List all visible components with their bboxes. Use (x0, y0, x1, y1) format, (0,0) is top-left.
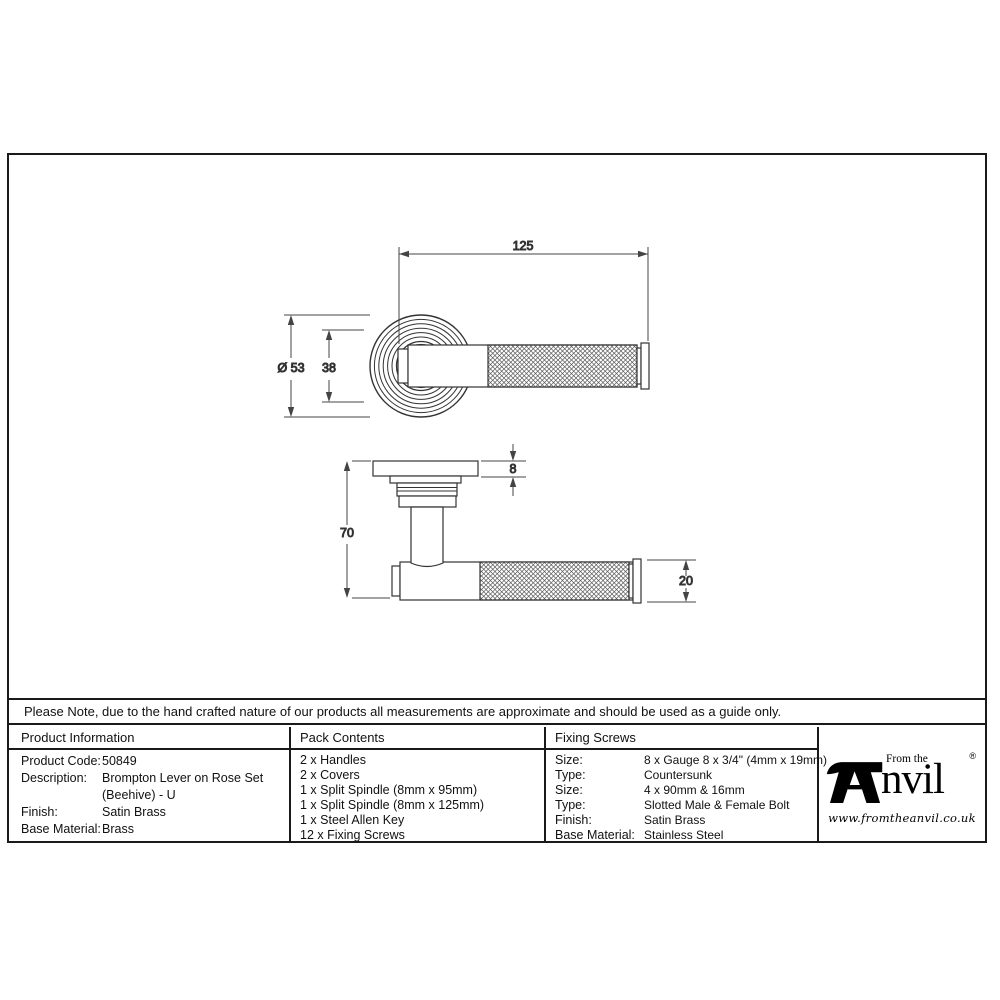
spec-label: Description: (21, 770, 102, 804)
spec-value: Satin Brass (102, 804, 283, 821)
spec-value: Brompton Lever on Rose Set (Beehive) - U (102, 770, 283, 804)
pack-item: 1 x Steel Allen Key (300, 813, 544, 828)
spec-label: Size: (555, 783, 644, 798)
spec-label: Product Code: (21, 753, 102, 770)
note-row: Please Note, due to the hand crafted nat… (9, 698, 985, 725)
product-information-header: Product Information (9, 727, 289, 750)
spec-sheet-page: Please Note, due to the hand crafted nat… (0, 0, 1000, 1000)
spec-label: Base Material: (555, 828, 644, 843)
fixing-screws-body: Size: 8 x Gauge 8 x 3/4" (4mm x 19mm) Ty… (546, 750, 817, 844)
spec-value: Countersunk (644, 768, 827, 783)
spec-value: Satin Brass (644, 813, 827, 828)
spec-value: 4 x 90mm & 16mm (644, 783, 827, 798)
pack-contents-body: 2 x Handles 2 x Covers 1 x Split Spindle… (291, 750, 544, 844)
registered-trademark-icon: ® (969, 751, 976, 761)
fixing-screws-column: Fixing Screws Size: 8 x Gauge 8 x 3/4" (… (546, 727, 819, 841)
pack-item: 12 x Fixing Screws (300, 828, 544, 843)
logo-wordmark-text: nvil (881, 756, 944, 803)
sheet-border-box: Please Note, due to the hand crafted nat… (7, 153, 987, 843)
spec-value: 8 x Gauge 8 x 3/4" (4mm x 19mm) (644, 753, 827, 768)
spec-label: Type: (555, 798, 644, 813)
spec-table: Product Information Product Code: 50849 … (9, 727, 985, 841)
product-information-column: Product Information Product Code: 50849 … (9, 727, 291, 841)
pack-contents-column: Pack Contents 2 x Handles 2 x Covers 1 x… (291, 727, 546, 841)
pack-contents-header: Pack Contents (291, 727, 544, 750)
spec-label: Finish: (555, 813, 644, 828)
anvil-icon (826, 757, 884, 805)
logo-wordmark: From the nvil ® (826, 755, 978, 809)
spec-label: Finish: (21, 804, 102, 821)
from-the-anvil-logo: From the nvil ® www.fromtheanvil.co.uk (826, 743, 978, 825)
spec-value: Stainless Steel (644, 828, 827, 843)
spec-value: Brass (102, 821, 283, 838)
pack-item: 2 x Handles (300, 753, 544, 768)
logo-website: www.fromtheanvil.co.uk (826, 811, 978, 825)
pack-item: 1 x Split Spindle (8mm x 95mm) (300, 783, 544, 798)
product-information-body: Product Code: 50849 Description: Brompto… (9, 750, 289, 838)
brand-column: From the nvil ® www.fromtheanvil.co.uk (819, 727, 985, 841)
spec-label: Type: (555, 768, 644, 783)
spec-label: Base Material: (21, 821, 102, 838)
spec-label: Size: (555, 753, 644, 768)
spec-value: 50849 (102, 753, 283, 770)
note-text: Please Note, due to the hand crafted nat… (9, 704, 781, 719)
pack-item: 2 x Covers (300, 768, 544, 783)
pack-item: 1 x Split Spindle (8mm x 125mm) (300, 798, 544, 813)
spec-value: Slotted Male & Female Bolt (644, 798, 827, 813)
fixing-screws-header: Fixing Screws (546, 727, 817, 750)
